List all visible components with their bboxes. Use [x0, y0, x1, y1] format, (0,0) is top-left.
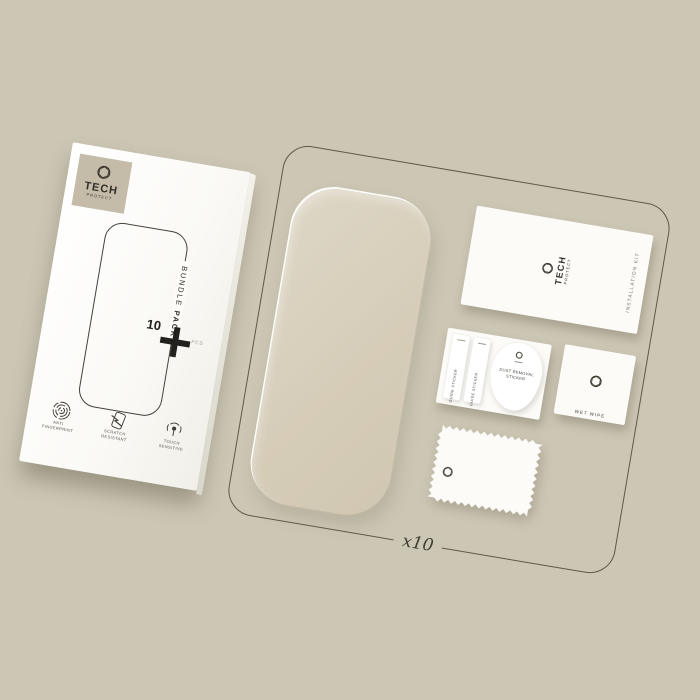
brand-circle-icon: [587, 372, 604, 389]
guide-sticker-label: GUIDE STICKER: [469, 372, 479, 406]
micro-rule: [457, 339, 465, 341]
brand-circle-icon: [94, 163, 114, 183]
product-box: TECH PROTECT BUNDLE PACK 10 PCS ANTIFING…: [19, 142, 250, 490]
guide-sticker-label: GUIDE STICKER: [448, 369, 458, 403]
pcs-label: PCS: [191, 339, 204, 347]
microfiber-cloth: [424, 420, 546, 521]
wet-wipe-packet: WET WIPE: [553, 344, 636, 425]
feature-anti-fingerprint: ANTIFINGERPRINT: [34, 397, 84, 446]
micro-rule: [514, 361, 522, 363]
plus-icon: [158, 325, 193, 360]
installation-kit-label: INSTALLATION KIT: [625, 252, 641, 313]
card-brand-logo: TECH PROTECT: [535, 237, 579, 302]
feature-scratch-resistant: SCRATCHRESISTANT: [90, 406, 140, 455]
dust-removal-sticker: DUST REMOVALSTICKER: [485, 339, 547, 415]
micro-rule: [478, 343, 486, 345]
dust-removal-label: DUST REMOVALSTICKER: [498, 367, 534, 384]
brand-circle-icon: [514, 350, 524, 360]
brand-circle-icon: [539, 260, 555, 276]
brand-logo-square: TECH PROTECT: [71, 154, 132, 214]
quantity-number: 10: [145, 316, 162, 333]
feature-touch-sensitive: TOUCHSENSITIVE: [146, 416, 196, 465]
quantity-group: 10 PCS: [158, 325, 193, 360]
